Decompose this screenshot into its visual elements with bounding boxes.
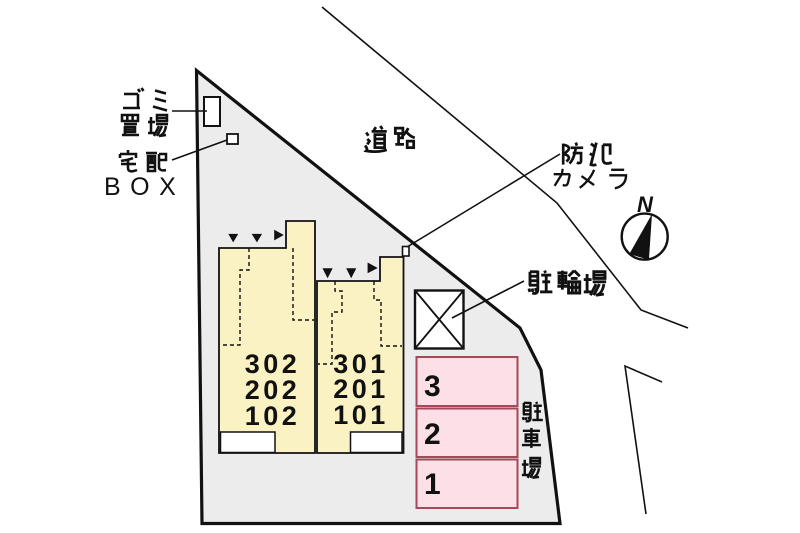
svg-text:3: 3	[424, 370, 441, 403]
svg-text:102: 102	[245, 401, 301, 431]
svg-text:1: 1	[424, 468, 441, 501]
svg-text:N: N	[637, 192, 654, 217]
svg-text:101: 101	[333, 400, 389, 430]
svg-text:2: 2	[424, 418, 441, 451]
svg-text:BOX: BOX	[104, 173, 185, 201]
